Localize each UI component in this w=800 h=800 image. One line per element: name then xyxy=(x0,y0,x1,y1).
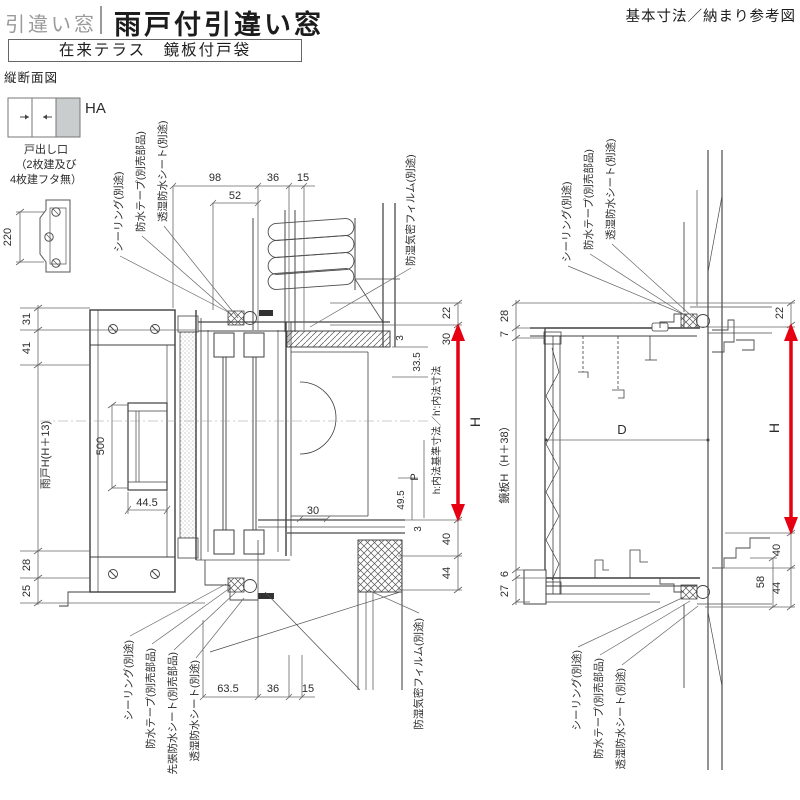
right-wall-post xyxy=(660,150,772,770)
dim-d: D xyxy=(617,422,626,437)
inner-height-note: h:内法基準寸法／h′:内法寸法 xyxy=(430,366,443,495)
callout-sheet-top-left: 透湿防水シート(別途) xyxy=(156,121,169,223)
dim-40-left-drawing: 40 xyxy=(441,533,453,545)
dim-27: 27 xyxy=(499,585,511,597)
dim-36-bottom: 36 xyxy=(267,683,279,695)
dim-3-bottom: 3 xyxy=(413,526,424,532)
legend-note-line1: 戸出し口 xyxy=(24,142,68,156)
dim-h-left-drawing: H xyxy=(467,417,483,427)
inner-height-arrow-right xyxy=(784,323,798,535)
dim-30-head: 30 xyxy=(441,333,453,345)
dim-63-5: 63.5 xyxy=(217,683,238,695)
shutter-box-section xyxy=(524,323,700,604)
callout-film-top-left-drawing: 防湿気密フィルム(別途) xyxy=(404,154,417,266)
left-lintel xyxy=(196,322,390,347)
callout-sheet-bottom-right: 透湿防水シート(別途) xyxy=(614,668,627,770)
dim-15-bottom: 15 xyxy=(302,683,314,695)
callout-sealing-top-left: シーリング(別途) xyxy=(112,172,125,253)
dim-7: 7 xyxy=(499,331,511,337)
dim-41: 41 xyxy=(21,342,33,354)
left-drawing: 500 44.5 xyxy=(20,121,483,775)
right-right-dim-lines xyxy=(697,300,795,610)
legend-note-line2: （2枚建及び xyxy=(15,157,76,171)
callout-tape-top-right: 防水テープ(別売部品) xyxy=(582,149,595,250)
dim-28-right-drawing: 28 xyxy=(499,310,511,322)
right-bottom-callout-leaders xyxy=(578,597,698,665)
callout-sealing-bottom-right: シーリング(別途) xyxy=(570,650,583,731)
dim-d-line xyxy=(545,439,710,442)
callout-sheet-top-right: 透湿防水シート(別途) xyxy=(604,139,617,241)
dim-58: 58 xyxy=(755,576,767,588)
left-seal-bottom xyxy=(228,578,274,599)
storm-shutter-case xyxy=(59,310,175,606)
dim-33-5: 33.5 xyxy=(412,352,423,372)
dim-44-left-drawing: 44 xyxy=(441,567,453,579)
dim-44-right-drawing: 44 xyxy=(771,582,783,594)
left-bottom-callout-leaders xyxy=(130,584,419,658)
right-top-callout-leaders xyxy=(568,244,696,320)
dim-3-top: 3 xyxy=(395,335,406,341)
right-drawing: D 28 7 鏡板H（H＋38） 6 27 xyxy=(497,139,798,771)
dim-500: 500 xyxy=(95,437,107,455)
dim-25-left: 25 xyxy=(21,585,33,597)
dim-h-right-drawing: H xyxy=(766,423,782,433)
dim-22-right-drawing: 22 xyxy=(774,307,786,319)
dim-40-right-drawing: 40 xyxy=(771,544,783,556)
dim-p: P xyxy=(409,473,421,480)
inner-height-arrow-left xyxy=(451,323,465,522)
dim-52: 52 xyxy=(229,190,241,202)
dim-30-sill: 30 xyxy=(307,505,319,517)
dim-shutter-height: 雨戸H(H＋13) xyxy=(40,421,52,489)
dim-98: 98 xyxy=(209,172,221,184)
dim-panel-height: 鏡板H（H＋38） xyxy=(497,420,511,503)
dim-6: 6 xyxy=(499,571,511,577)
legend-note-line3: 4枚建フタ無） xyxy=(10,172,82,186)
left-sill-wall xyxy=(196,520,405,697)
dim-28-left: 28 xyxy=(21,559,33,571)
callout-sheet-bottom-left: 透湿防水シート(別途) xyxy=(188,660,201,762)
legend-window-schematic xyxy=(8,98,80,137)
cross-section-drawing: HA 戸出し口 （2枚建及び 4枚建フタ無） 220 xyxy=(0,0,800,800)
right-seal-bottom xyxy=(681,585,710,599)
storm-shutter-panel xyxy=(178,316,198,558)
legend-part-icon xyxy=(16,200,70,272)
legend-type-label: HA xyxy=(85,100,106,117)
dim-44-5: 44.5 xyxy=(136,497,157,509)
dim-22-left-drawing: 22 xyxy=(441,307,453,319)
dim-31: 31 xyxy=(21,313,33,325)
callout-tape-bottom-left: 防水テープ(別売部品) xyxy=(144,648,157,749)
left-seal-top xyxy=(228,310,273,325)
callout-sealing-bottom-left: シーリング(別途) xyxy=(122,640,135,721)
dim-15-top: 15 xyxy=(297,172,309,184)
callout-tape-bottom-right: 防水テープ(別売部品) xyxy=(592,658,605,759)
right-left-dim-lines xyxy=(512,300,795,605)
callout-film-bottom-left-drawing: 防湿気密フィルム(別途) xyxy=(412,618,425,730)
dim-49-5: 49.5 xyxy=(396,490,407,510)
right-seal-top xyxy=(681,314,710,328)
drawing-page: 引違い窓 雨戸付引違い窓 基本寸法／納まり参考図 在来テラス 鏡板付戸袋 縦断面… xyxy=(0,0,800,800)
dim-36-top: 36 xyxy=(267,172,279,184)
callout-presheet-bottom-left: 先張防水シート(別売部品) xyxy=(166,652,179,775)
legend-part-dim: 220 xyxy=(2,228,14,246)
callout-sealing-top-right: シーリング(別途) xyxy=(560,182,573,263)
callout-tape-top-left: 防水テープ(別売部品) xyxy=(134,131,147,232)
